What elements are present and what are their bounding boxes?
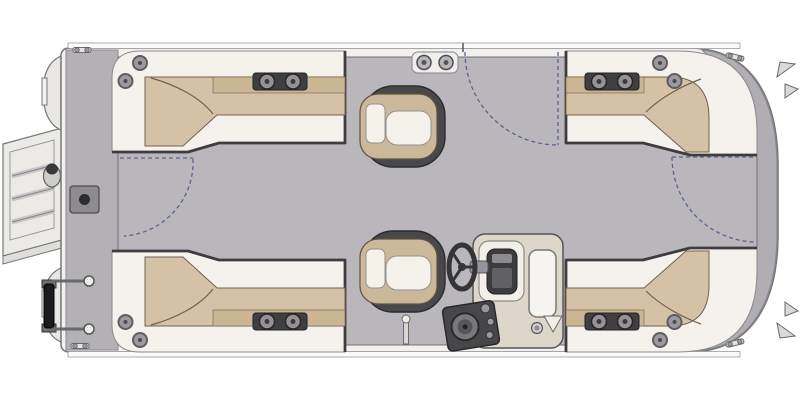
windshield-panel (529, 250, 556, 317)
floorplan-svg (0, 0, 800, 400)
dash-knob (487, 318, 495, 326)
gauge-dial (492, 268, 512, 288)
stern-plate-knob (79, 194, 90, 205)
helm-captain-chair (360, 231, 445, 312)
speaker-dash-panel (442, 300, 500, 352)
boarding-ladder (3, 128, 62, 264)
l-lounge-top-right (566, 51, 757, 155)
l-lounge-bottom-left (112, 251, 345, 352)
ski-pylon (402, 315, 410, 344)
cleat-bottom-left (71, 344, 89, 349)
captain-chair-top (360, 86, 445, 167)
l-lounge-bottom-right (566, 248, 757, 352)
motor-bracket (44, 284, 54, 328)
stern-platform (66, 50, 118, 350)
pontoon-stern-cone-top (42, 56, 61, 130)
top-rail (68, 43, 740, 49)
gauge-screen (492, 254, 512, 263)
pontoon-floorplan-canvas (0, 0, 800, 400)
bow-fins (777, 62, 798, 338)
l-lounge-top-left (112, 51, 345, 152)
dash-knob (486, 331, 494, 339)
cleat-top-left (73, 48, 91, 53)
